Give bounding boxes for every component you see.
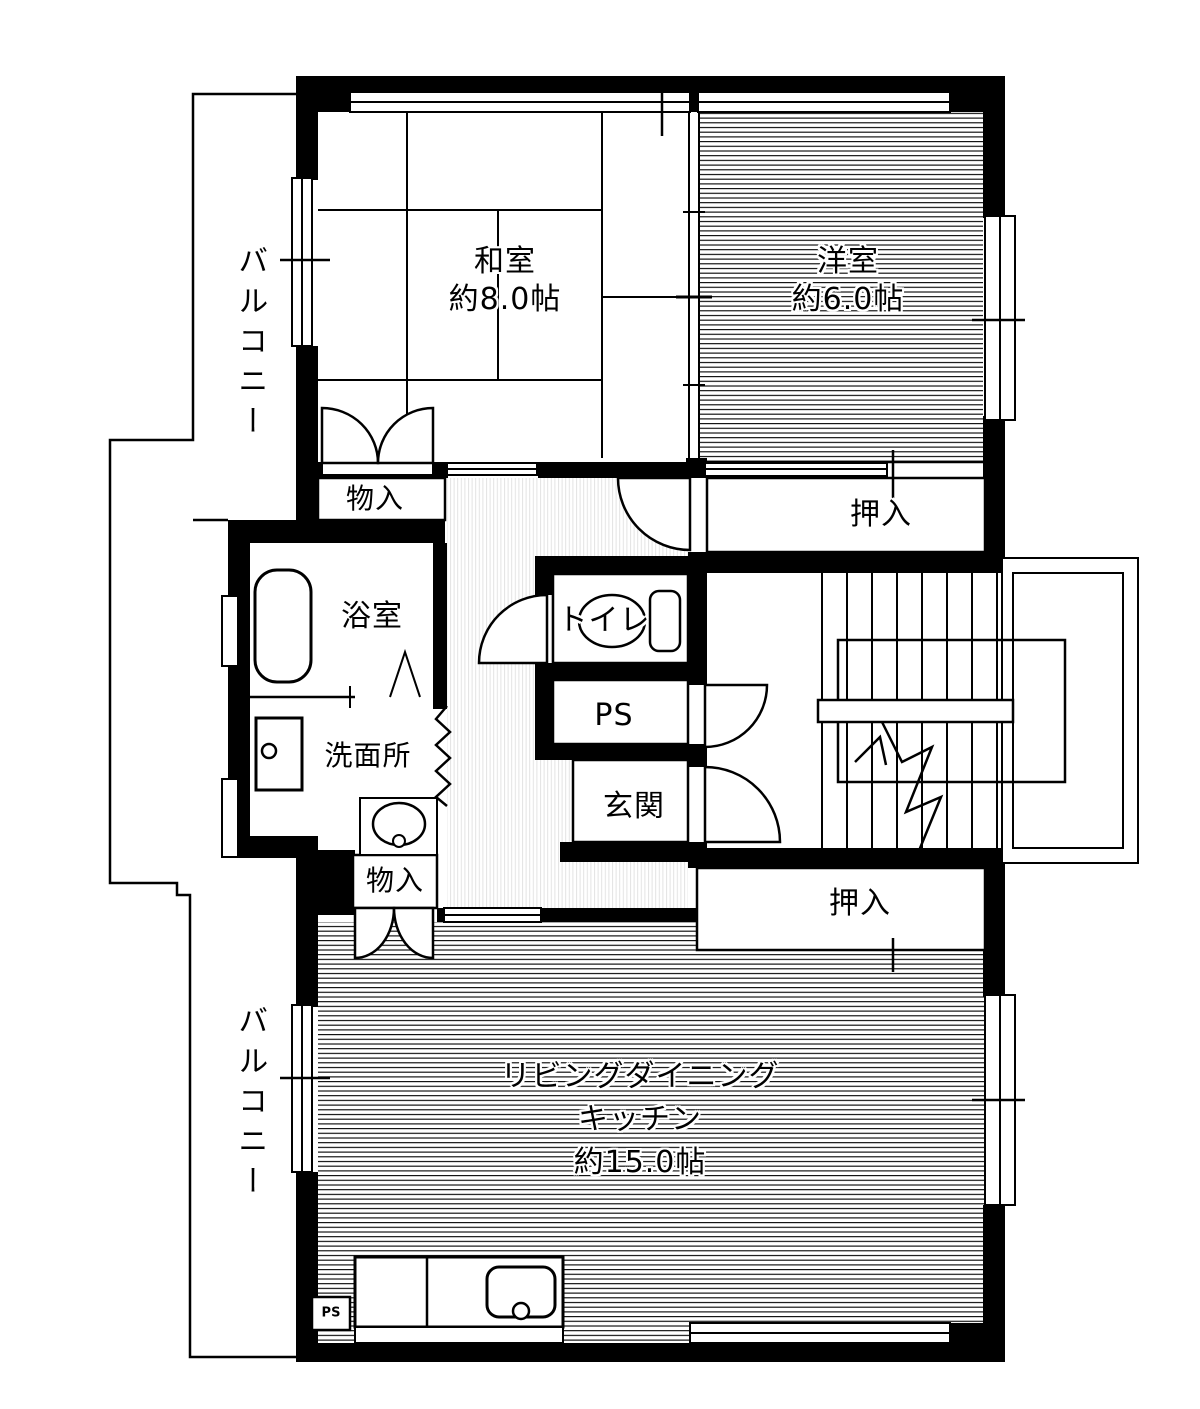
ldk-name-line1-label: リビングダイニング [501, 1060, 780, 1095]
kitchen-faucet-icon [513, 1303, 529, 1319]
balcony-bottom-label: バルコニー [232, 1005, 267, 1205]
entrance-door-upper-arc [705, 685, 767, 747]
oshiire-top-box [707, 478, 985, 552]
ldk-bottom-window [690, 1323, 950, 1343]
washitsu-name-label: 和室 [474, 245, 536, 280]
monoire-bottom-label: 物入 [366, 865, 424, 897]
monoire-top-label: 物入 [346, 483, 404, 515]
hall-ldk-sliding-door [444, 908, 541, 922]
monoire-top-sliding-track [322, 463, 433, 475]
yoshitsu-name-label: 洋室 [817, 245, 879, 280]
stair-landing-bar [818, 700, 1013, 722]
kitchen-counter-icon [355, 1257, 563, 1343]
ldk-name-line2-label: キッチン [578, 1103, 702, 1138]
yokushitsu-label: 浴室 [341, 600, 403, 635]
oshiire-top-label: 押入 [850, 498, 912, 533]
bathroom-folding-door [350, 652, 420, 708]
yoshitsu-top-window [698, 92, 950, 112]
bathtub-icon [255, 570, 311, 682]
washitsu-area-label: 約8.0帖 [449, 283, 562, 318]
ps-small-label: PS [322, 1307, 341, 1322]
senmenjo-window [222, 779, 238, 857]
washitsu-hall-sliding-door [447, 463, 537, 475]
balcony-top-label: バルコニー [232, 245, 267, 445]
ldk-area-label: 約15.0帖 [574, 1146, 707, 1181]
washing-machine-icon [256, 718, 302, 790]
oshiire-bottom-label: 押入 [829, 887, 891, 922]
ldk-floor-right [697, 950, 985, 1343]
washbasin-icon [360, 798, 437, 855]
entrance-door-lower-arc [705, 767, 780, 842]
toilet-label: トイレ [558, 604, 651, 639]
stair-landing-outer [1002, 558, 1138, 863]
yoshitsu-area-label: 約6.0帖 [792, 283, 905, 318]
senmenjo-label: 洗面所 [324, 740, 411, 772]
staircase [818, 558, 1138, 863]
bathroom-window [222, 596, 238, 666]
ps-label: PS [594, 699, 633, 734]
floor-plan: バルコニー バルコニー 和室 約8.0帖 洋室 約6.0帖 物入 押入 浴室 ト… [0, 0, 1200, 1409]
genkan-label: 玄関 [603, 790, 665, 825]
